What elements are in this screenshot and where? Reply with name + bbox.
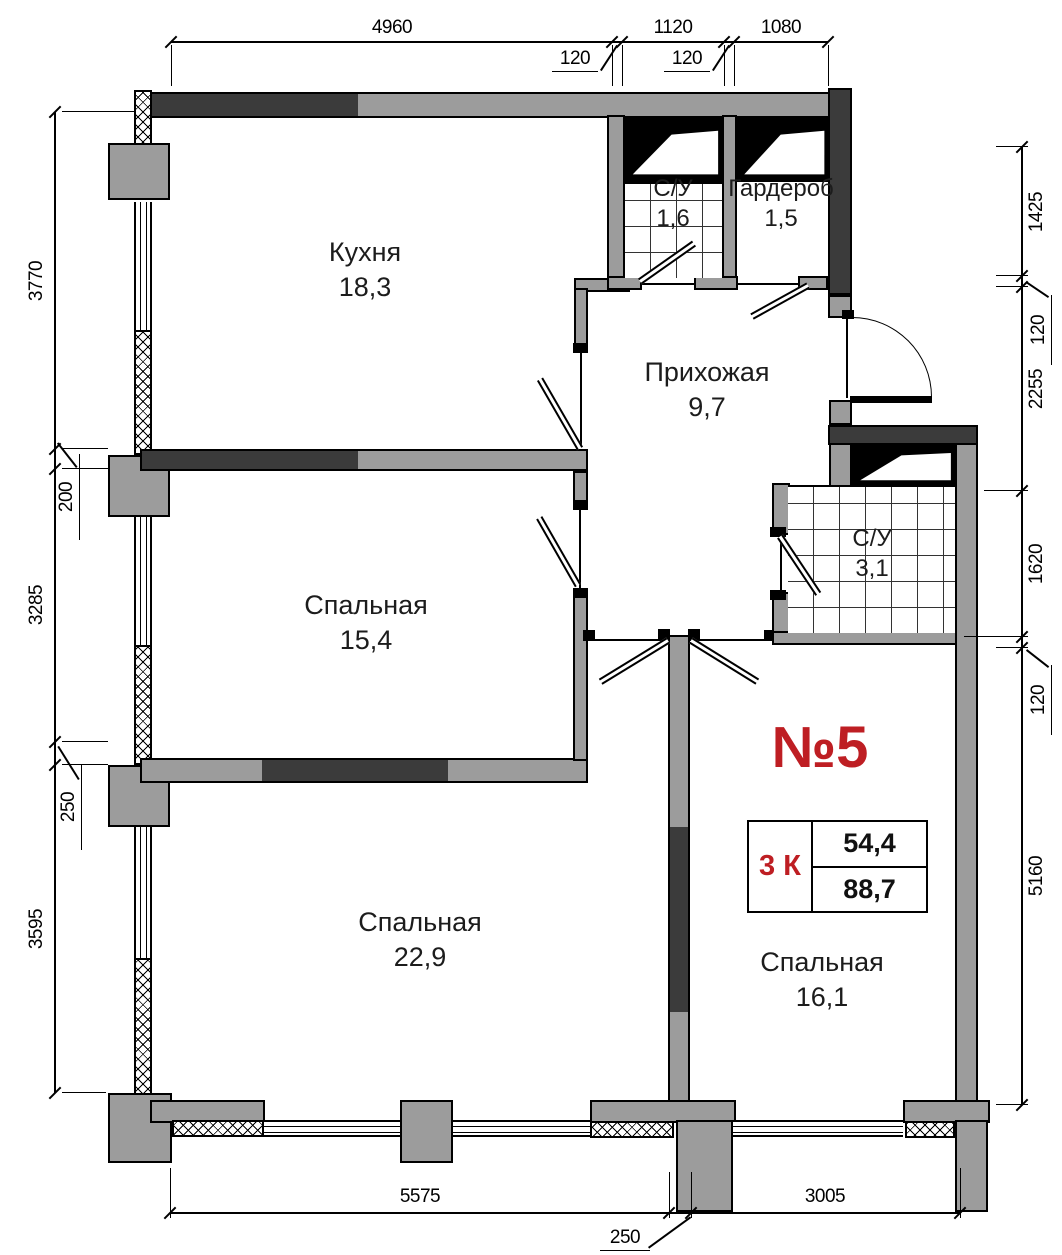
door-leaf	[599, 638, 670, 685]
exterior-wall-right	[955, 443, 978, 1103]
interior-wall	[573, 596, 588, 761]
total-area-cell: 88,7	[813, 868, 926, 912]
room-area: 15,4	[266, 623, 466, 658]
dim-label: 3005	[775, 1186, 875, 1208]
ext-line	[62, 111, 134, 112]
beam-dark	[828, 425, 978, 445]
ext-line	[62, 741, 108, 742]
window	[453, 1120, 590, 1137]
door-opening-line	[641, 283, 694, 285]
room-area: 1,5	[726, 204, 836, 234]
ext-line	[734, 45, 735, 86]
dim-label: 3595	[26, 879, 48, 979]
leader-line	[600, 45, 618, 71]
door-opening-line	[580, 352, 582, 447]
window	[134, 202, 152, 330]
pilaster	[108, 143, 170, 200]
room-name: С/У	[623, 174, 723, 204]
door-leaf	[537, 377, 583, 450]
dim-line	[1021, 147, 1023, 1105]
hatch-wall	[172, 1120, 264, 1137]
ext-line	[622, 45, 623, 86]
door-stop	[770, 590, 786, 600]
window	[733, 1120, 903, 1137]
room-name: Кухня	[265, 235, 465, 270]
room-label-bedroom-2: Спальная 22,9	[320, 905, 520, 974]
hatch-wall	[905, 1121, 955, 1138]
door-stop	[842, 310, 854, 319]
dim-label: 120	[1028, 665, 1052, 735]
dim-label: 1120	[623, 17, 723, 39]
leader-line	[648, 1216, 691, 1248]
room-label-bathroom: С/У 3,1	[822, 524, 922, 584]
room-label-bathroom-small: С/У 1,6	[623, 174, 723, 234]
dim-label: 5575	[370, 1186, 470, 1208]
dim-line	[170, 1212, 960, 1214]
wall-pier	[400, 1100, 453, 1163]
ext-line	[62, 448, 108, 449]
room-label-bedroom-1: Спальная 15,4	[266, 588, 466, 657]
interior-wall	[694, 276, 738, 290]
door-stop	[573, 343, 588, 353]
dim-label: 1080	[731, 17, 831, 39]
floor-plan: Кухня 18,3 С/У 1,6 Гардероб 1,5 Прихожая…	[0, 0, 1062, 1255]
hatch-wall	[134, 958, 152, 1098]
hatch-wall	[590, 1121, 674, 1138]
interior-wall-dark	[670, 827, 688, 1012]
dim-label: 120	[664, 48, 710, 72]
wall-pier	[829, 443, 852, 487]
room-label-bedroom-3: Спальная 16,1	[722, 945, 922, 1014]
room-name: Прихожая	[607, 355, 807, 390]
dim-label: 3770	[26, 231, 48, 331]
room-label-kitchen: Кухня 18,3	[265, 235, 465, 304]
room-name: Спальная	[320, 905, 520, 940]
wall-pier	[676, 1120, 733, 1212]
dim-label: 250	[600, 1227, 650, 1251]
rooms-count-cell: 3 К	[749, 822, 813, 911]
vent-shaft	[737, 118, 828, 182]
room-area: 1,6	[623, 204, 723, 234]
room-label-hallway: Прихожая 9,7	[607, 355, 807, 424]
room-area: 9,7	[607, 390, 807, 425]
entrance-door-arc	[852, 317, 932, 397]
dim-label: 120	[1028, 295, 1052, 365]
interior-wall	[772, 631, 957, 645]
room-name: Спальная	[266, 588, 466, 623]
door-stop	[583, 630, 595, 641]
dim-label: 1620	[1026, 514, 1048, 614]
ext-line	[171, 45, 172, 86]
room-name: Гардероб	[726, 174, 836, 204]
room-label-wardrobe: Гардероб 1,5	[726, 174, 836, 234]
entrance-door-leaf	[850, 396, 932, 403]
exterior-wall-top-dark	[142, 94, 358, 116]
dim-label: 4960	[342, 17, 442, 39]
hatch-wall	[134, 330, 152, 455]
room-area: 16,1	[722, 980, 922, 1015]
ext-line	[828, 45, 829, 86]
hatch-wall	[134, 90, 152, 146]
hatch-wall	[134, 645, 152, 765]
dim-line	[54, 112, 56, 1093]
dim-line	[171, 41, 828, 43]
entrance-jamb-bottom	[829, 400, 852, 425]
vent-shaft	[625, 118, 722, 182]
room-area: 3,1	[822, 554, 922, 584]
dim-label: 5160	[1026, 826, 1048, 926]
door-leaf	[536, 516, 581, 587]
window	[264, 1120, 400, 1137]
entrance-door-line	[846, 318, 848, 398]
area-table: 3 К 54,4 88,7	[747, 820, 928, 913]
door-opening-line	[588, 639, 668, 641]
dim-label: 1425	[1026, 162, 1048, 262]
dim-label: 3285	[26, 555, 48, 655]
apartment-number: №5	[745, 714, 895, 781]
room-name: С/У	[822, 524, 922, 554]
interior-wall-dark	[142, 451, 358, 469]
room-area: 18,3	[265, 270, 465, 305]
living-area-cell: 54,4	[813, 822, 926, 868]
ext-line	[964, 636, 1028, 637]
window	[134, 825, 152, 958]
vent-shaft	[852, 445, 955, 485]
area-cells: 54,4 88,7	[813, 822, 926, 911]
room-name: Спальная	[722, 945, 922, 980]
door-leaf	[750, 282, 809, 319]
ext-line	[62, 1092, 106, 1093]
leader-line	[712, 45, 730, 71]
door-leaf	[689, 638, 759, 685]
door-opening-line	[738, 283, 799, 285]
room-area: 22,9	[320, 940, 520, 975]
dim-label: 120	[552, 48, 598, 72]
door-opening-line	[690, 639, 775, 641]
interior-wall-dark	[262, 760, 448, 781]
window	[134, 517, 152, 645]
door-stop	[573, 500, 588, 510]
